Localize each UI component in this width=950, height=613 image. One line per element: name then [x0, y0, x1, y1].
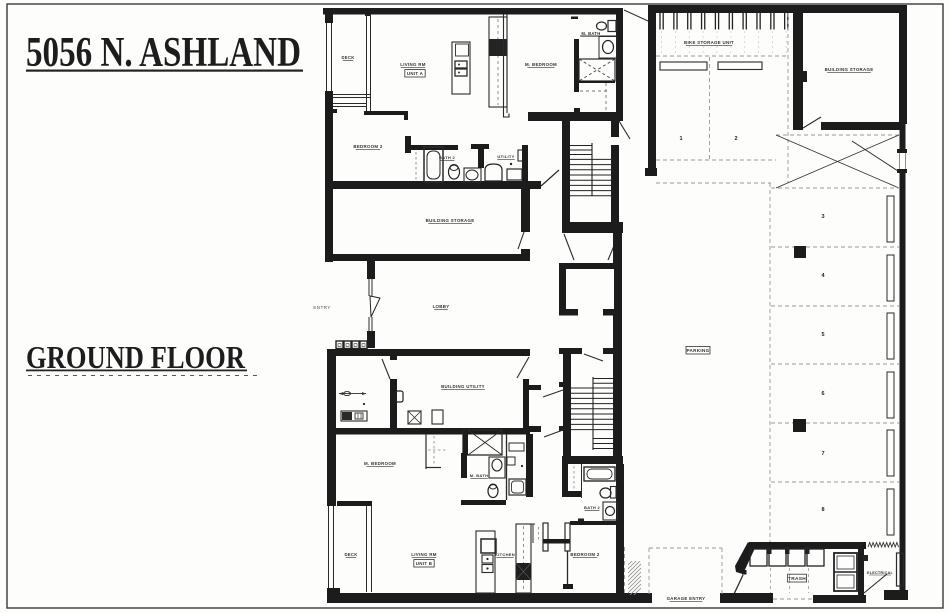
svg-text:DECK: DECK — [341, 55, 354, 60]
svg-text:M. BATH: M. BATH — [470, 473, 488, 478]
svg-text:2: 2 — [734, 136, 737, 142]
svg-text:M. BEDROOM: M. BEDROOM — [525, 62, 557, 67]
svg-text:7: 7 — [821, 451, 824, 457]
svg-text:PARKING: PARKING — [687, 348, 710, 353]
svg-text:5: 5 — [821, 332, 824, 338]
svg-text:1: 1 — [679, 136, 682, 142]
svg-text:M. BEDROOM: M. BEDROOM — [364, 461, 396, 466]
svg-text:8: 8 — [821, 507, 824, 513]
svg-text:M. BATH: M. BATH — [581, 31, 600, 36]
svg-text:5056 N. ASHLAND: 5056 N. ASHLAND — [26, 30, 301, 76]
svg-text:ELECTRICAL: ELECTRICAL — [867, 571, 894, 575]
svg-text:BATH 2: BATH 2 — [439, 155, 455, 160]
svg-text:BATH 2: BATH 2 — [584, 505, 600, 510]
svg-text:ENTRY: ENTRY — [313, 305, 330, 310]
svg-text:BUILDING UTILITY: BUILDING UTILITY — [441, 384, 485, 389]
svg-text:BIKE STORAGE UNIT: BIKE STORAGE UNIT — [684, 40, 734, 45]
svg-text:BUILDING STORAGE: BUILDING STORAGE — [426, 218, 475, 223]
svg-text:BUILDING STORAGE: BUILDING STORAGE — [825, 67, 874, 72]
svg-text:LIVING RM: LIVING RM — [411, 552, 436, 557]
svg-text:KITCHEN: KITCHEN — [495, 552, 515, 557]
svg-text:UTILITY: UTILITY — [497, 154, 514, 159]
svg-text:6: 6 — [821, 391, 824, 397]
svg-text:DECK: DECK — [344, 552, 357, 557]
svg-text:GARAGE ENTRY: GARAGE ENTRY — [667, 596, 706, 601]
svg-text:LOBBY: LOBBY — [433, 304, 450, 309]
svg-text:UNIT A: UNIT A — [407, 71, 424, 76]
svg-text:BEDROOM 2: BEDROOM 2 — [353, 144, 383, 149]
svg-text:UNIT B: UNIT B — [416, 561, 432, 566]
svg-text:BEDROOM 2: BEDROOM 2 — [570, 552, 600, 557]
svg-text:3: 3 — [821, 214, 824, 220]
svg-text:TRASH: TRASH — [788, 576, 806, 582]
svg-text:LIVING RM: LIVING RM — [400, 62, 425, 67]
